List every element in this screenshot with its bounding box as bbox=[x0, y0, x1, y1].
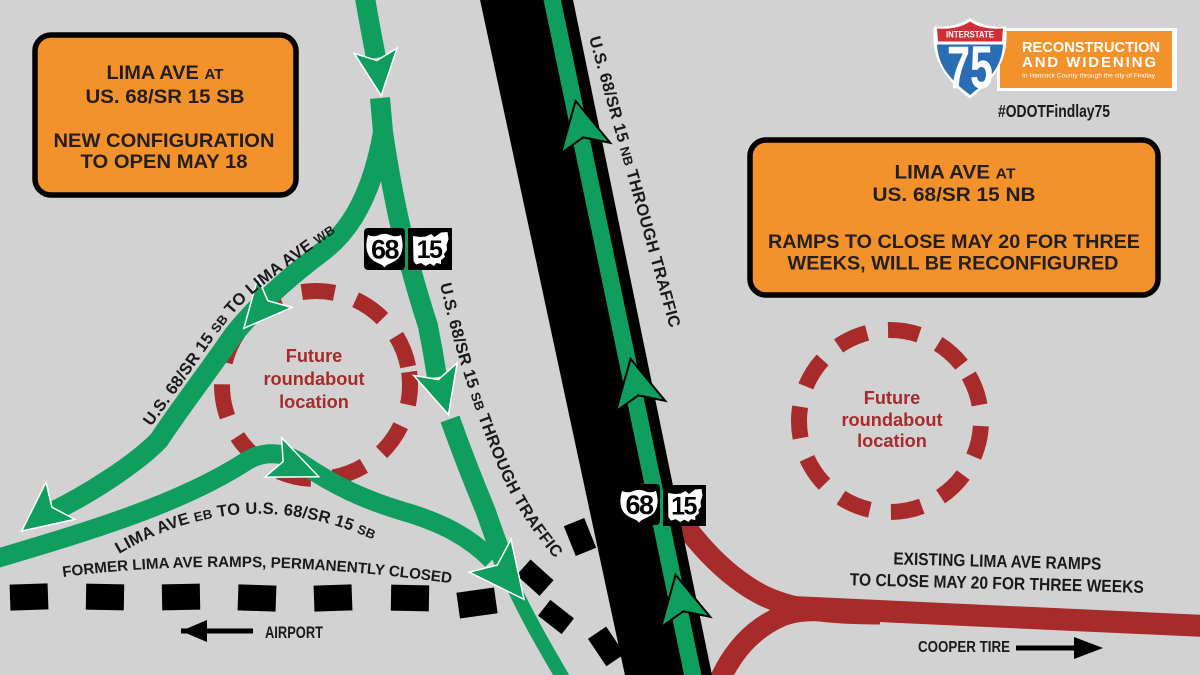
svg-text:RAMPS TO CLOSE MAY 20 FOR THRE: RAMPS TO CLOSE MAY 20 FOR THREE bbox=[768, 232, 1140, 253]
svg-text:WEEKS, WILL BE RECONFIGURED: WEEKS, WILL BE RECONFIGURED bbox=[788, 254, 1119, 275]
svg-text:15: 15 bbox=[671, 493, 697, 521]
svg-text:location: location bbox=[279, 392, 349, 412]
svg-text:75: 75 bbox=[947, 34, 993, 101]
svg-text:AND WIDENING: AND WIDENING bbox=[1022, 54, 1156, 71]
svg-text:roundabout: roundabout bbox=[263, 369, 364, 389]
svg-text:US. 68/SR 15 NB: US. 68/SR 15 NB bbox=[873, 185, 1036, 206]
svg-text:NEW CONFIGURATION: NEW CONFIGURATION bbox=[54, 131, 275, 152]
svg-text:LIMA AVE AT: LIMA AVE AT bbox=[895, 163, 1016, 184]
svg-text:TO OPEN MAY 18: TO OPEN MAY 18 bbox=[81, 152, 248, 173]
svg-text:roundabout: roundabout bbox=[841, 410, 942, 430]
svg-text:COOPER TIRE: COOPER TIRE bbox=[918, 639, 1010, 656]
svg-text:68: 68 bbox=[625, 490, 654, 520]
svg-text:LIMA AVE AT: LIMA AVE AT bbox=[107, 63, 224, 84]
svg-text:Future: Future bbox=[864, 388, 921, 408]
svg-text:68: 68 bbox=[371, 235, 400, 265]
svg-text:#ODOTFindlay75: #ODOTFindlay75 bbox=[998, 101, 1110, 121]
svg-text:US. 68/SR 15 SB: US. 68/SR 15 SB bbox=[86, 87, 245, 108]
svg-text:AIRPORT: AIRPORT bbox=[265, 624, 323, 642]
svg-text:location: location bbox=[857, 431, 927, 451]
svg-text:In Hancock County through the: In Hancock County through the city of Fi… bbox=[1022, 73, 1156, 80]
svg-text:Future: Future bbox=[286, 346, 343, 366]
svg-text:15: 15 bbox=[417, 236, 443, 264]
